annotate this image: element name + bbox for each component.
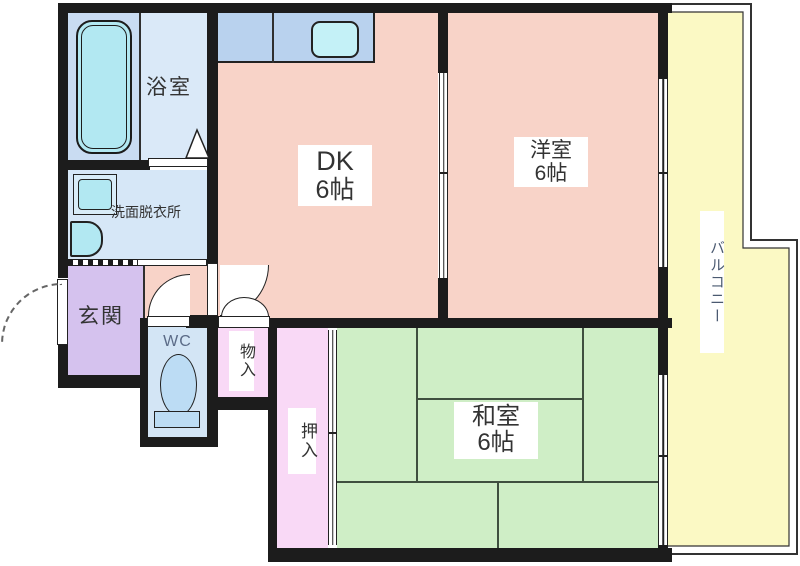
tatami-line (582, 328, 584, 482)
entrance-label: 玄関 (78, 305, 124, 328)
wc-label: WC (148, 333, 207, 351)
wall-wc-bottom (140, 437, 218, 447)
dk-name: DK (301, 147, 369, 177)
washing-machine-pan (70, 221, 103, 257)
wall-left-upper (58, 3, 68, 278)
closet-fusuma-door (328, 330, 337, 545)
western-room-size: 6帖 (517, 162, 585, 185)
washroom-curtain-dashed (68, 259, 138, 266)
window-tick (659, 172, 667, 174)
wall-bottom (268, 548, 672, 562)
kitchen-counter-divider (272, 13, 274, 63)
western-room-window (658, 79, 668, 267)
wall-storage-bottom (207, 397, 277, 410)
window-tick (659, 455, 667, 457)
wall-right-top (658, 3, 668, 79)
toilet-tank (154, 411, 200, 428)
wall-japanese-top (270, 318, 672, 328)
closet-label: 押入 (288, 408, 316, 474)
door-tick (329, 432, 336, 434)
wall-closet-left (268, 318, 277, 562)
tatami-line (497, 481, 499, 548)
wc-door-sill (147, 316, 190, 327)
wall-wc-right (207, 316, 218, 447)
dk-label: DK 6帖 (298, 145, 372, 206)
window-panel-line (662, 375, 664, 545)
floorplan: 浴室 洗面脱衣所 玄関 WC 物入 押入 DK 6帖 洋室 6帖 和室 6帖 バ… (0, 0, 800, 566)
washroom-label: 洗面脱衣所 (111, 205, 181, 220)
storage-label: 物入 (229, 331, 254, 391)
wall-bath-wash-divider (60, 160, 150, 170)
wall-entrance-bottom (58, 375, 143, 388)
door-panel-line (332, 330, 334, 545)
western-room-label: 洋室 6帖 (514, 137, 588, 187)
tatami-line (416, 398, 584, 400)
washroom-sill (137, 259, 207, 266)
storage-door-sill (218, 316, 270, 328)
dk-size: 6帖 (301, 177, 369, 205)
wall-right-mid (658, 267, 668, 375)
wall-dk-divider-bottom (438, 278, 448, 328)
wall-wc-left (140, 318, 148, 447)
washbasin-bowl (78, 179, 112, 210)
dk-western-sliding-door (439, 73, 448, 278)
kitchen-sink (311, 21, 359, 58)
japanese-room-name: 和室 (457, 404, 535, 430)
japanese-room-window (658, 375, 668, 545)
bathroom-label: 浴室 (146, 76, 192, 99)
wall-top (58, 3, 672, 13)
toilet-bowl (160, 354, 197, 416)
bath-zone-divider (139, 13, 141, 160)
bathtub-inner-line (81, 25, 127, 149)
balcony-label: バルコニー (700, 211, 724, 353)
tatami-line (416, 328, 418, 482)
bathroom-folding-door-icon (184, 128, 211, 160)
entrance-hall-divider (143, 266, 145, 318)
wall-dk-divider-top (438, 3, 448, 73)
western-room-name: 洋室 (517, 139, 585, 162)
dk-door-leaf (207, 263, 218, 316)
japanese-room-size: 6帖 (457, 430, 535, 456)
door-tick (440, 172, 447, 174)
door-panel-line (443, 73, 445, 278)
japanese-room-label: 和室 6帖 (454, 402, 538, 459)
